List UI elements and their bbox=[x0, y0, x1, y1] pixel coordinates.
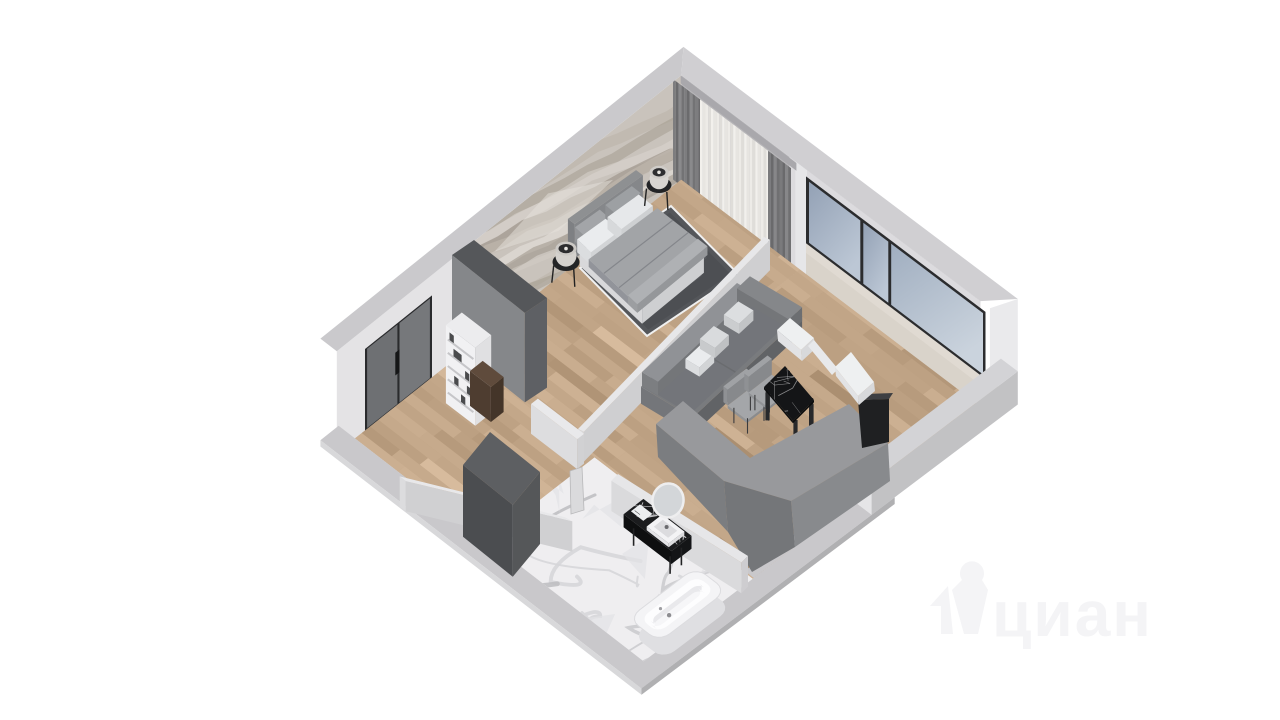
svg-text:циан: циан bbox=[992, 578, 1153, 650]
